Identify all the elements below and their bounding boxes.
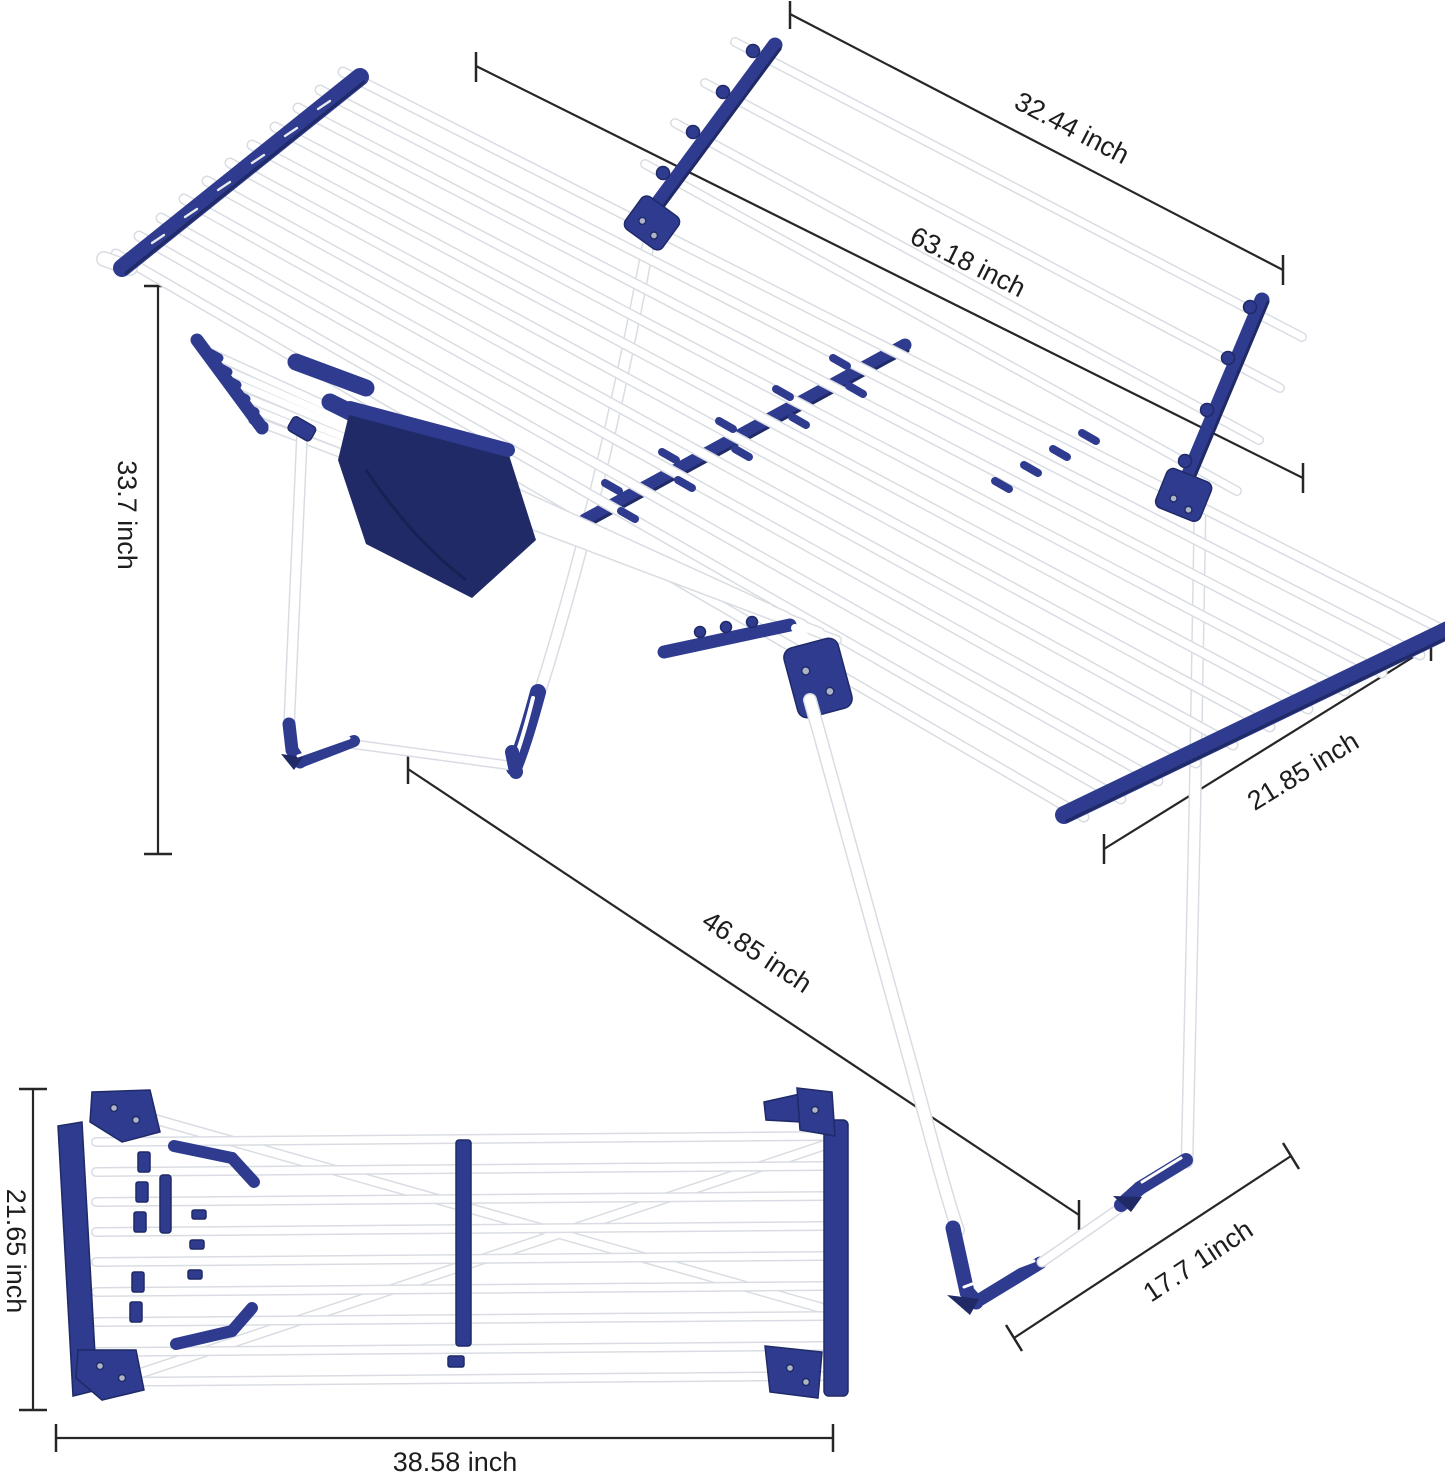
dim-label-foot-depth: 17.7 1inch	[1138, 1214, 1258, 1308]
dim-label-wing-length: 32.44 inch	[1010, 86, 1134, 170]
right-front-foot	[947, 1228, 1040, 1315]
front-left-foot	[281, 724, 354, 770]
dim-label-floor-diagonal: 46.85 inch	[697, 905, 817, 999]
rear-left-foot	[512, 752, 516, 772]
dim-label-stand-height: 33.7 inch	[112, 460, 142, 570]
drying-rack-diagram-canvas: 32.44 inch 63.18 inch 33.7 inch 21.85 in…	[0, 0, 1445, 1474]
folded-right-rail	[824, 1120, 848, 1396]
shoe-bag	[338, 408, 536, 598]
dim-label-deck-width: 21.85 inch	[1242, 726, 1364, 817]
dim-label-folded-width: 21.65 inch	[1, 1189, 31, 1314]
dimension-stand-height	[144, 286, 172, 854]
product-dimension-diagram: 32.44 inch 63.18 inch 33.7 inch 21.85 in…	[0, 0, 1445, 1474]
folded-rack-illustration	[58, 1088, 848, 1400]
dimension-wing-length	[790, 1, 1283, 285]
main-rack-illustration	[104, 42, 1445, 1315]
dim-label-folded-length: 38.58 inch	[393, 1447, 518, 1474]
right-rear-foot	[1113, 1158, 1186, 1212]
dimension-floor-diagonal	[408, 754, 1079, 1230]
folded-center-rail	[456, 1140, 471, 1346]
